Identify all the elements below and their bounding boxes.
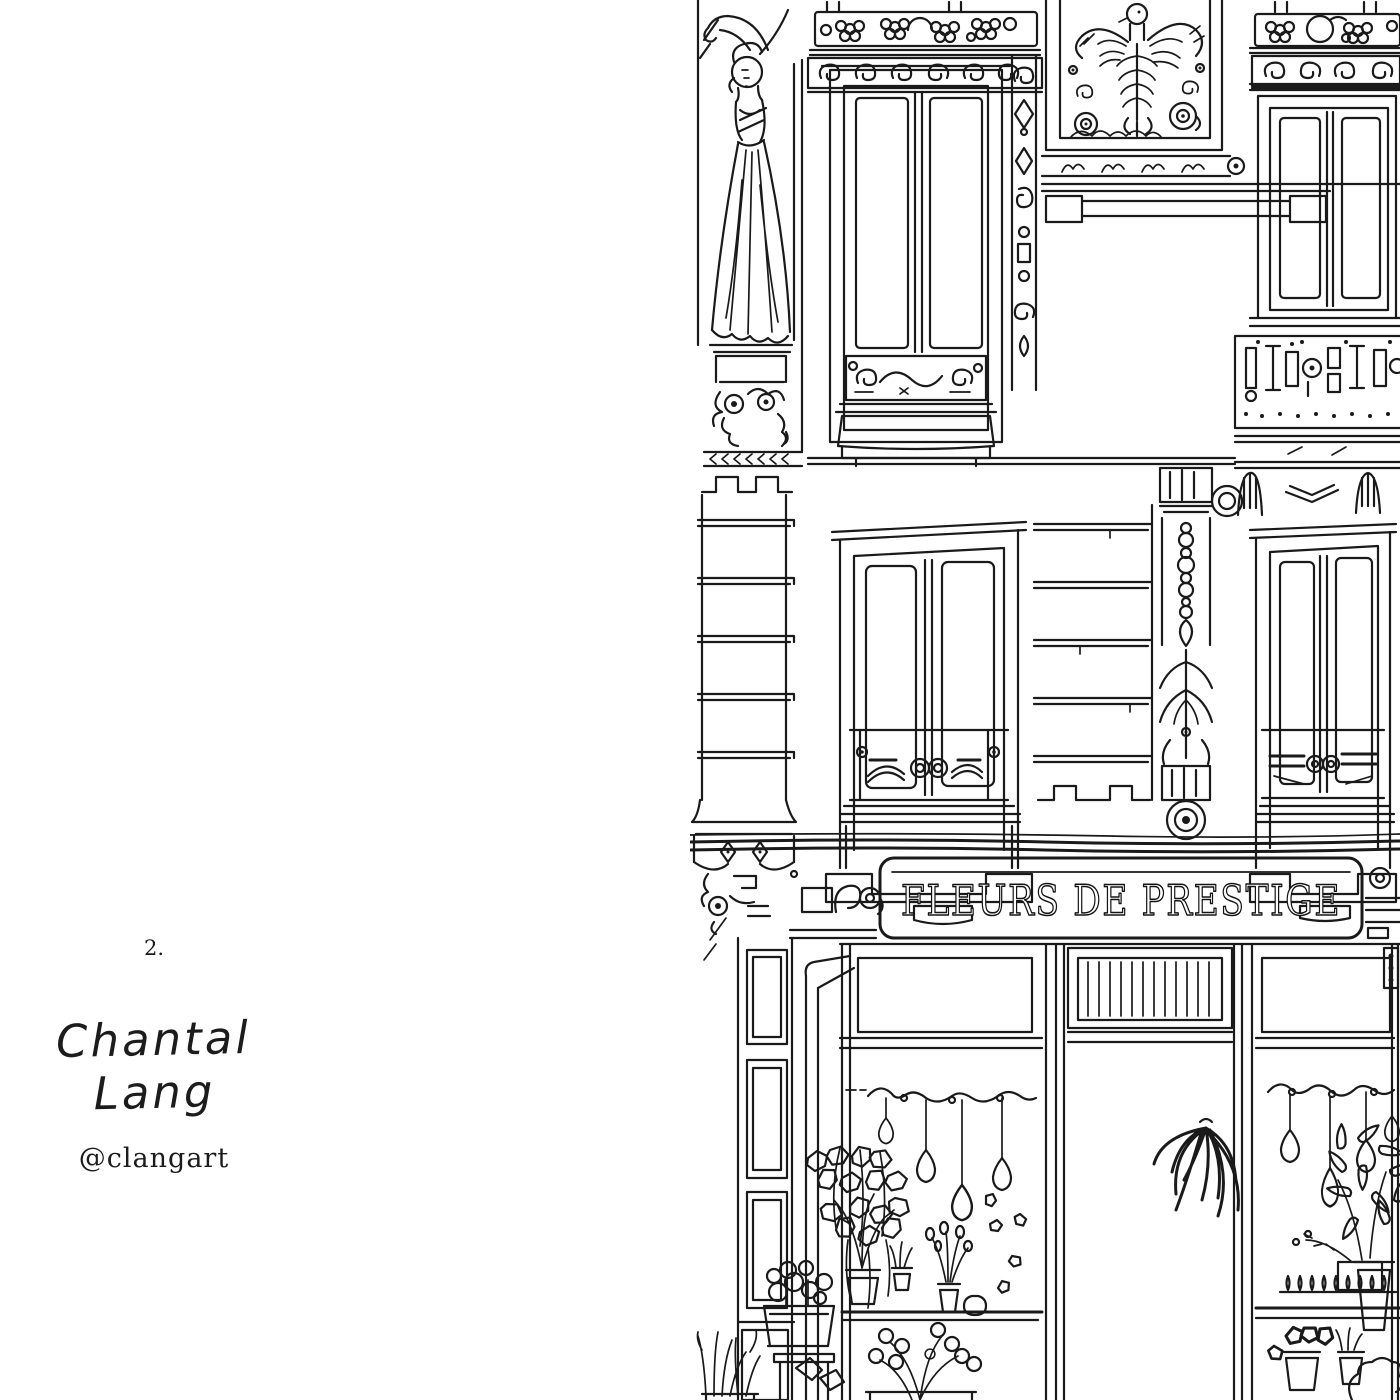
masonry-courses [1034,505,1152,800]
upper-left-window [822,66,1010,466]
middle-right-window [1250,524,1396,921]
downspout-pipe [796,956,854,1400]
iron-window-rail [850,730,1008,800]
door-transom [1068,948,1232,1028]
leaf-ornament [1160,650,1212,764]
middle-cornice [808,458,1380,515]
shop-window-right [1256,944,1400,1400]
facade-illustration: FLEURS DE PRESTIGE [690,0,1400,1400]
flower-balustrade-right [1250,2,1400,88]
balcony-railing-band [1235,336,1400,468]
artist-name: Chantal Lang [0,1010,309,1122]
shop-pilaster-left [704,918,794,1400]
entablature [690,786,1400,852]
middle-left-window [826,522,1032,924]
eucalyptus-plant [866,1323,981,1400]
flower-pots-right [1267,1323,1400,1400]
shop-sign: FLEURS DE PRESTIGE [790,858,1400,938]
console-bracket [702,874,770,934]
page-number: 2. [0,938,308,959]
pendant-lights-left [868,1088,1036,1220]
book-page: 2. Chantal Lang @clangart [0,0,1400,1400]
iron-balcony-grille [846,356,986,400]
ornamental-pilaster [1160,468,1242,839]
rusticated-pillar [692,495,796,934]
shop-window-left [807,944,1042,1400]
artist-handle: @clangart [0,1143,308,1174]
sign-left-ornament [790,871,883,938]
shop-sign-text: FLEURS DE PRESTIGE [901,876,1341,925]
hanging-ivy-plant [807,1143,913,1308]
shop-door [1046,944,1252,1400]
caryatid-statue [698,0,802,492]
flower-balustrade-left [808,2,1042,92]
ornament-jamb [1012,56,1036,390]
shopfront [698,918,1400,1400]
artist-credit: 2. Chantal Lang @clangart [0,938,308,1174]
spider-plant [1154,1119,1238,1216]
pothos-plant [1293,1122,1400,1330]
plant-pots-shelf-left [834,1192,1042,1320]
bead-chain [1178,523,1194,646]
